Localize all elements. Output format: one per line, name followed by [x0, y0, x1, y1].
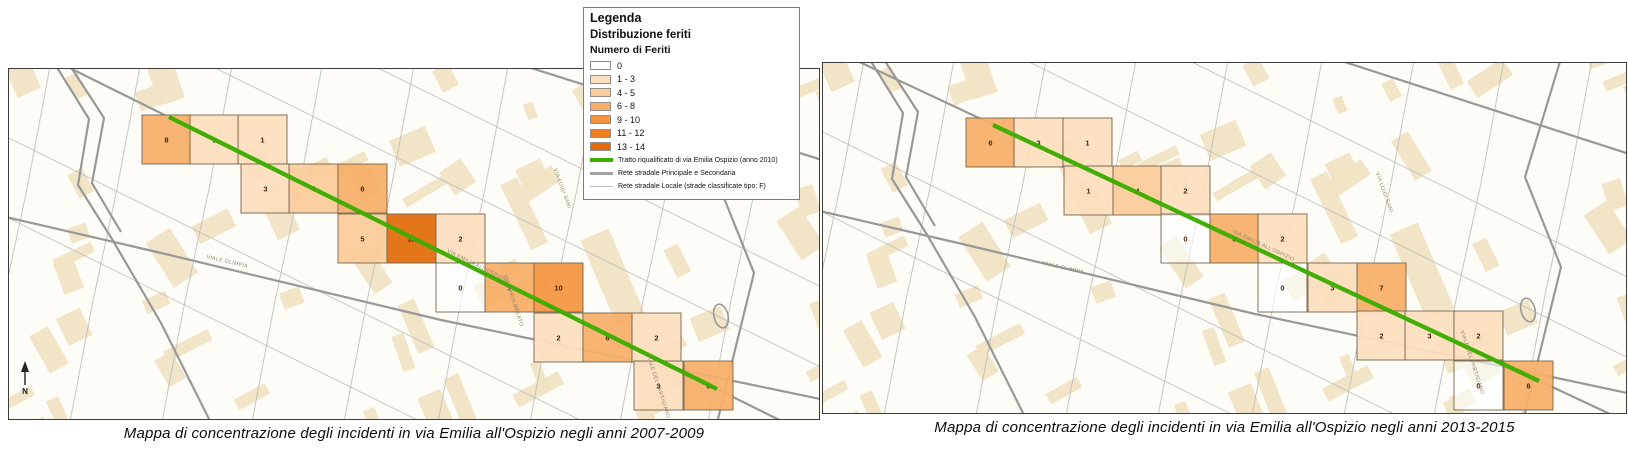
legend-class-label: 6 - 8 — [617, 101, 635, 111]
grid-cell-value: 0 — [1280, 284, 1284, 293]
grid-cell-value: 0 — [1183, 235, 1187, 244]
grid-cell-value: 7 — [1379, 284, 1383, 293]
map-caption-2007-2009: Mappa di concentrazione degli incidenti … — [8, 425, 820, 442]
legend-class-label: 11 - 12 — [617, 128, 644, 138]
map-frame-right: 63114208203723206VIALE OLIMPIAVIA EMILIA… — [822, 62, 1627, 414]
legend-class-swatch — [590, 129, 611, 138]
grid-cell-value: 1 — [1085, 139, 1089, 148]
grid-cell-value: 3 — [263, 185, 267, 194]
legend-title: Legenda — [590, 10, 795, 26]
legend-panel: Legenda Distribuzione feriti Numero di F… — [583, 7, 800, 200]
grid-cell-value: 2 — [1280, 235, 1284, 244]
legend-class-swatch — [590, 102, 611, 111]
legend-class-swatch — [590, 115, 611, 124]
legend-class-label: 4 - 5 — [617, 88, 635, 98]
legend-class-swatch — [590, 142, 611, 151]
svg-text:N: N — [22, 387, 28, 396]
grid-cell: 6 — [583, 313, 632, 362]
grid-cell-value: 3 — [1427, 332, 1431, 341]
grid-cell-value: 2 — [654, 334, 658, 343]
legend-class-item: 0 — [590, 59, 795, 73]
legend-class-swatch — [590, 75, 611, 84]
legend-class-item: 9 - 10 — [590, 113, 795, 127]
grid-cell-value: 6 — [1526, 382, 1530, 391]
grid-cell-value: 2 — [1183, 187, 1187, 196]
legend-class-swatch — [590, 88, 611, 97]
grid-cell-value: 6 — [988, 139, 992, 148]
legend-line-item: Rete stradale Principale e Secondaria — [590, 167, 795, 180]
legend-class-item: 4 - 5 — [590, 86, 795, 100]
legend-class-item: 13 - 14 — [590, 140, 795, 154]
map-panel-2013-2015: 63114208203723206VIALE OLIMPIAVIA EMILIA… — [822, 62, 1627, 436]
grid-cell: 3 — [1014, 118, 1063, 167]
legend-line-swatch — [590, 158, 613, 162]
grid-cell-value: 10 — [554, 284, 562, 293]
grid-cell: 2 — [1357, 311, 1406, 360]
legend-line-label: Rete stradale Principale e Secondaria — [618, 170, 736, 177]
legend-field-label: Numero di Feriti — [590, 43, 795, 57]
legend-class-label: 13 - 14 — [617, 142, 645, 152]
legend-line-swatch — [590, 186, 613, 187]
legend-line-label: Tratto riqualificato di via Emilia Ospiz… — [618, 157, 778, 164]
legend-line-swatch — [590, 172, 613, 175]
legend-line-items: Tratto riqualificato di via Emilia Ospiz… — [590, 154, 795, 193]
grid-cell-value: 1 — [260, 136, 264, 145]
grid-cell-value: 2 — [1476, 332, 1480, 341]
grid-cell-value: 8 — [164, 136, 168, 145]
legend-subtitle: Distribuzione feriti — [590, 28, 795, 43]
grid-cell: 7 — [1357, 263, 1406, 312]
grid-cell: 6 — [966, 118, 1015, 167]
grid-cell: 1 — [1064, 166, 1113, 215]
grid-cell-value: 6 — [360, 185, 364, 194]
legend-line-label: Rete stradale Locale (strade classificat… — [618, 183, 766, 190]
legend-class-label: 1 - 3 — [617, 74, 635, 84]
legend-classes: 01 - 34 - 56 - 89 - 1011 - 1213 - 14 — [590, 59, 795, 154]
map-caption-2013-2015: Mappa di concentrazione degli incidenti … — [822, 419, 1627, 436]
grid-cell: 2 — [632, 313, 681, 362]
grid-cell-value: 2 — [458, 235, 462, 244]
grid-cell-value: 2 — [556, 334, 560, 343]
grid-cell-value: 1 — [1086, 187, 1090, 196]
legend-class-label: 0 — [617, 61, 622, 71]
grid-cell-value: 0 — [458, 284, 462, 293]
legend-line-item: Rete stradale Locale (strade classificat… — [590, 180, 795, 193]
legend-class-item: 1 - 3 — [590, 73, 795, 87]
legend-class-label: 9 - 10 — [617, 115, 640, 125]
legend-class-item: 11 - 12 — [590, 127, 795, 141]
grid-cell: 3 — [1308, 263, 1357, 312]
legend-class-swatch — [590, 61, 611, 70]
legend-line-item: Tratto riqualificato di via Emilia Ospiz… — [590, 154, 795, 167]
map-svg-2013-2015: 63114208203723206VIALE OLIMPIAVIA EMILIA… — [823, 63, 1626, 413]
legend-class-item: 6 - 8 — [590, 100, 795, 114]
grid-cell-value: 5 — [360, 235, 364, 244]
grid-cell: 10 — [534, 263, 583, 312]
grid-cell-value: 2 — [1379, 332, 1383, 341]
